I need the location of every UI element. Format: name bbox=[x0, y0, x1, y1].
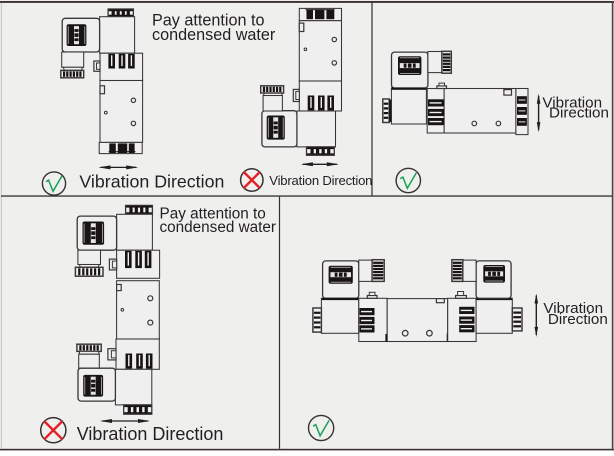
svg-text:Vibration Direction: Vibration Direction bbox=[77, 424, 224, 444]
svg-text:Vibration Direction: Vibration Direction bbox=[79, 172, 224, 192]
svg-text:Vibration Direction: Vibration Direction bbox=[269, 173, 372, 188]
svg-text:Direction: Direction bbox=[548, 311, 608, 328]
svg-text:condensed water: condensed water bbox=[160, 219, 277, 236]
svg-text:condensed water: condensed water bbox=[152, 26, 276, 44]
svg-text:Direction: Direction bbox=[549, 105, 609, 122]
